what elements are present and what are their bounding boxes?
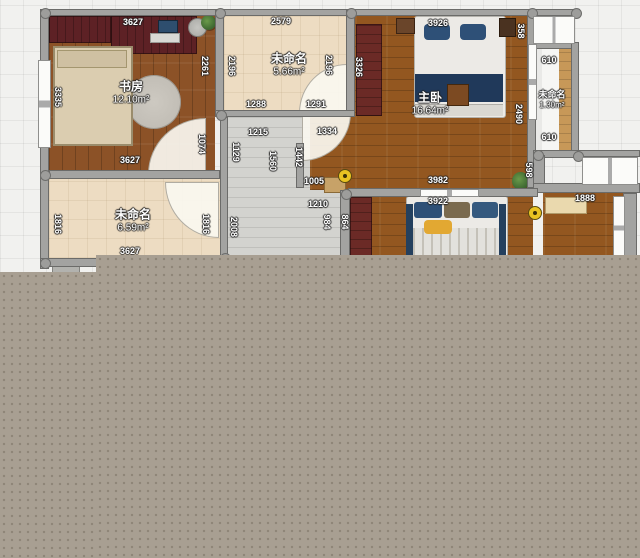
wall-joint[interactable] <box>215 8 226 19</box>
window-rightwing-top[interactable] <box>582 157 638 185</box>
dimension-label: 1560 <box>268 151 278 171</box>
dimension-label: 3335 <box>53 87 63 107</box>
dimension-label: 984 <box>322 214 332 229</box>
room-name: 未命名 <box>271 51 307 66</box>
room-label-566: 未命名 5.66m² <box>271 51 307 79</box>
wall-corridor-left[interactable] <box>220 117 228 258</box>
dimension-label: 598 <box>524 162 534 177</box>
wall-joint[interactable] <box>533 150 544 161</box>
study-bed-pillow[interactable] <box>57 50 127 68</box>
dimension-label: 3627 <box>120 155 140 165</box>
room-name: 书房 <box>113 79 150 94</box>
dimension-label: 2008 <box>229 217 239 237</box>
master-bed-tray[interactable] <box>447 84 469 106</box>
door-lock-icon[interactable] <box>338 169 352 183</box>
room-area: 5.66m² <box>271 66 307 79</box>
nightstand-right[interactable] <box>499 18 516 37</box>
dimension-label: 3922 <box>428 196 448 206</box>
wall-rightwing-top[interactable] <box>577 150 640 157</box>
wall-joint[interactable] <box>341 189 352 200</box>
dimension-label: 1215 <box>248 127 268 137</box>
dimension-label: 2196 <box>324 55 334 75</box>
dimension-label: 1888 <box>575 193 595 203</box>
door-lock-icon[interactable] <box>528 206 542 220</box>
room-label-balcony: 未命名 1.30m² <box>538 89 565 110</box>
laptop-icon[interactable] <box>158 20 178 33</box>
dimension-label: 610 <box>541 132 556 142</box>
bedroom2-frame-left[interactable] <box>406 204 413 258</box>
dimension-label: 864 <box>340 214 350 229</box>
wall-top[interactable] <box>40 9 580 16</box>
plant-icon[interactable] <box>201 15 216 30</box>
room-name: 未命名 <box>538 89 565 100</box>
wall-balcony-right[interactable] <box>571 42 579 158</box>
desk-pad[interactable] <box>150 33 180 43</box>
dimension-label: 2196 <box>227 56 237 76</box>
bedroom2-pillow-yellow[interactable] <box>424 220 452 234</box>
dimension-label: 610 <box>541 55 556 65</box>
wall-study-room566[interactable] <box>215 9 224 117</box>
nightstand-left[interactable] <box>396 18 415 34</box>
wall-study-bottom[interactable] <box>49 170 220 179</box>
bedroom2-frame-right[interactable] <box>499 204 506 258</box>
room-label-659: 未命名 6.59m² <box>115 207 151 235</box>
room-name: 未命名 <box>115 207 151 222</box>
floorplan-canvas[interactable]: 书房 12.10m² 未命名 5.66m² 主卧 16.64m² 未命名 1.3… <box>0 0 640 558</box>
wall-joint[interactable] <box>40 258 51 269</box>
dimension-label: 2490 <box>514 104 524 124</box>
wall-joint[interactable] <box>216 110 227 121</box>
dimension-label: 2579 <box>271 16 291 26</box>
gray-overlay <box>96 255 640 558</box>
dimension-label: 358 <box>516 23 526 38</box>
wall-joint[interactable] <box>40 170 51 181</box>
room-name: 主卧 <box>412 90 449 105</box>
dimension-label: 1074 <box>197 134 207 154</box>
wall-joint[interactable] <box>40 8 51 19</box>
dimension-label: 1816 <box>53 214 63 234</box>
window-master-right[interactable] <box>528 44 537 120</box>
wall-rightwing-right[interactable] <box>623 193 637 258</box>
bedroom2-wardrobe[interactable] <box>350 197 372 258</box>
room-area: 16.64m² <box>412 105 449 118</box>
dimension-label: 1288 <box>246 99 266 109</box>
window-balcony-top[interactable] <box>533 16 575 44</box>
study-wardrobe[interactable] <box>49 16 111 43</box>
master-pillow-right[interactable] <box>460 24 486 40</box>
gray-overlay <box>0 272 96 558</box>
room-label-study: 书房 12.10m² <box>113 79 150 107</box>
room-label-master: 主卧 16.64m² <box>412 90 449 118</box>
dimension-label: 1442 <box>294 147 304 167</box>
room-area: 1.30m² <box>538 101 565 111</box>
dimension-label: 1291 <box>306 99 326 109</box>
room-area: 12.10m² <box>113 94 150 107</box>
dimension-label: 1816 <box>201 214 211 234</box>
dimension-label: 1005 <box>304 176 324 186</box>
dimension-label: 1334 <box>317 126 337 136</box>
window-rightwing-right[interactable] <box>613 196 625 260</box>
dimension-label: 2261 <box>200 56 210 76</box>
dimension-label: 3982 <box>428 175 448 185</box>
dimension-label: 1210 <box>308 199 328 209</box>
dimension-label: 3926 <box>428 18 448 28</box>
bedroom2-pillow-blue2[interactable] <box>472 202 498 218</box>
wall-corridor-top[interactable] <box>215 110 355 117</box>
dimension-label: 3326 <box>354 57 364 77</box>
room-area: 6.59m² <box>115 222 151 235</box>
dimension-label: 3627 <box>123 17 143 27</box>
dimension-label: 1129 <box>231 142 241 162</box>
window-study-left[interactable] <box>38 60 51 148</box>
wall-joint[interactable] <box>346 8 357 19</box>
